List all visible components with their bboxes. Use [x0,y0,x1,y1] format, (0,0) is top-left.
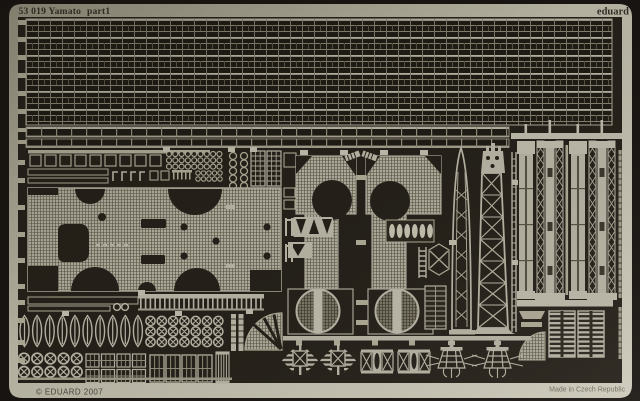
svg-text:© EDUARD 2007: © EDUARD 2007 [36,388,103,397]
svg-text:eduard: eduard [597,7,629,18]
svg-text:53 019Yamatopart1: 53 019Yamatopart1 [19,6,111,17]
svg-text:Made in Czech Republic: Made in Czech Republic [549,387,625,394]
